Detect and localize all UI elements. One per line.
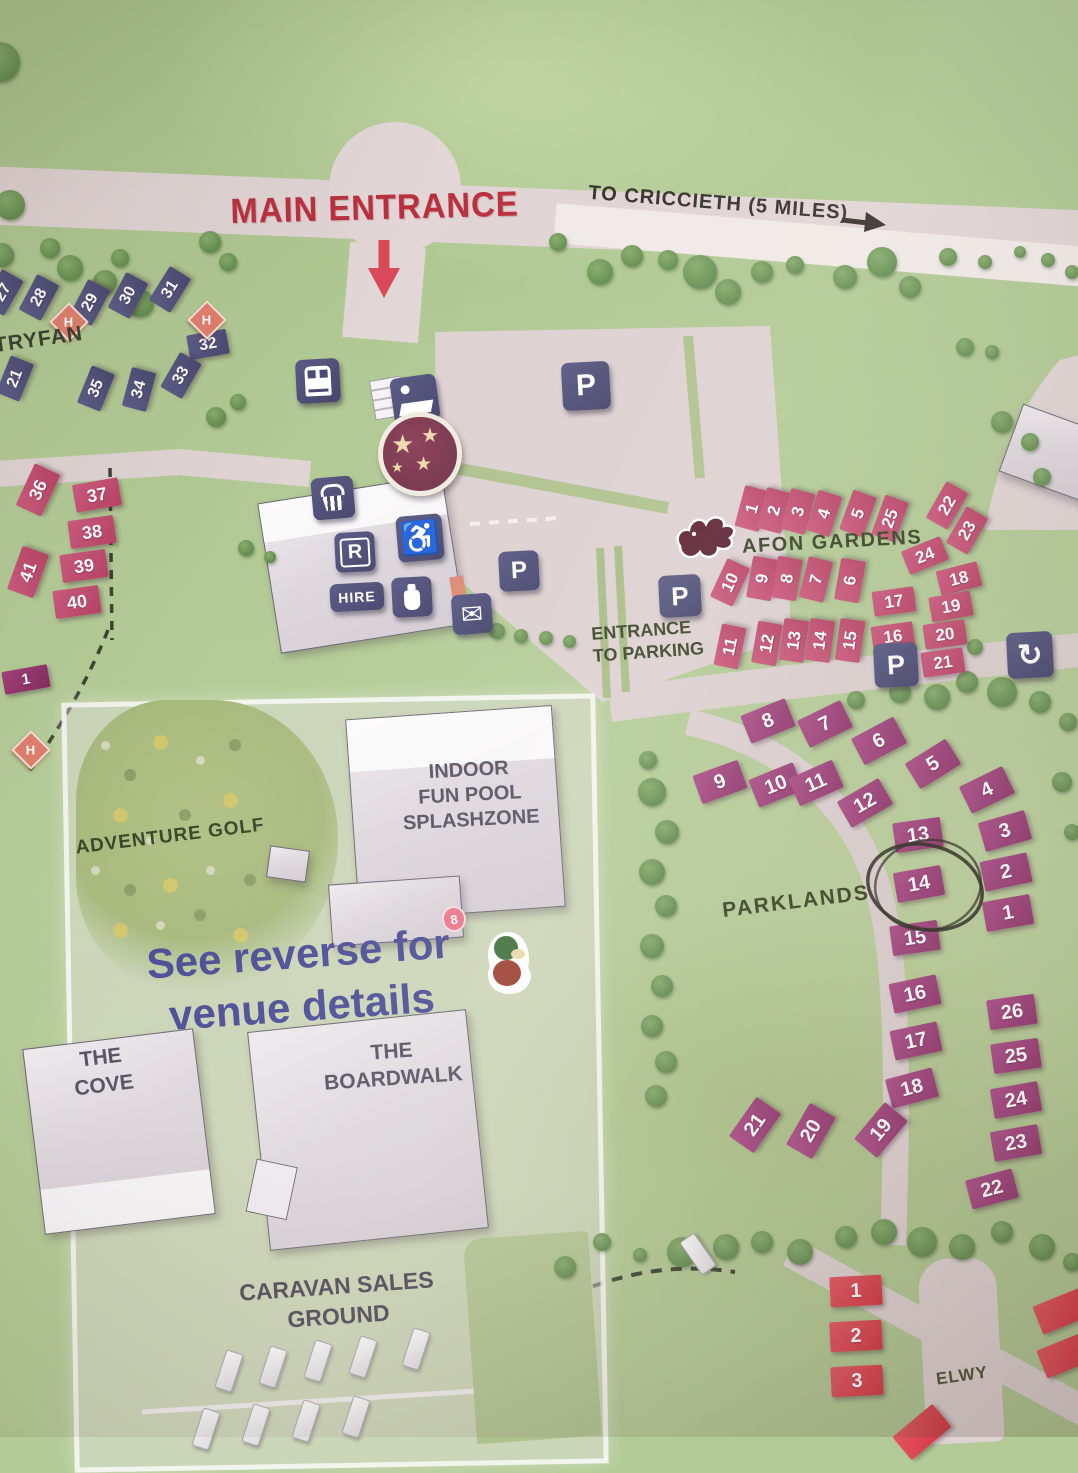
golf-hole-marker — [101, 741, 110, 750]
entertainment-stars-icon: ★ ★ ★ ★ — [378, 412, 462, 496]
tree — [514, 629, 528, 643]
tree — [563, 635, 576, 648]
star-icon: ★ — [415, 453, 432, 476]
tree — [593, 1233, 611, 1251]
tree — [835, 1226, 857, 1248]
tree — [1014, 246, 1026, 258]
golf-hole-marker — [229, 739, 241, 751]
tree — [640, 934, 664, 958]
golf-hole-marker — [91, 866, 100, 875]
criccieth-arrow-icon — [840, 208, 888, 236]
tree — [238, 540, 254, 556]
golf-hole-marker — [153, 735, 168, 750]
tree — [539, 631, 553, 645]
tree — [230, 394, 246, 410]
tree — [639, 751, 657, 769]
golf-hole-marker — [179, 809, 191, 821]
entrance-to-parking-label: ENTRANCE TO PARKING — [591, 616, 705, 667]
tree — [111, 249, 129, 267]
main-entrance-label: MAIN ENTRANCE — [230, 184, 519, 232]
golf-hole-marker — [194, 909, 206, 921]
tree — [1065, 265, 1078, 279]
parking-sign: P — [498, 550, 540, 592]
tree — [683, 255, 717, 289]
golf-hole-marker — [244, 874, 256, 886]
tree — [847, 691, 865, 709]
tree — [833, 265, 857, 289]
post-box-icon: ✉ — [451, 593, 494, 636]
tree — [1063, 1253, 1078, 1271]
tree — [987, 677, 1017, 707]
tree — [867, 247, 897, 277]
tree — [641, 1015, 663, 1037]
tree — [206, 407, 226, 427]
tree — [713, 1234, 739, 1260]
tree — [655, 895, 677, 917]
tree — [651, 975, 673, 997]
tree — [1052, 772, 1072, 792]
tree — [751, 1231, 773, 1253]
golf-hole-marker — [124, 769, 136, 781]
tree — [1021, 433, 1039, 451]
tree — [939, 248, 957, 266]
tree — [956, 671, 978, 693]
tree — [991, 411, 1013, 433]
tree — [1033, 468, 1051, 486]
tree — [587, 259, 613, 285]
tree — [715, 279, 741, 305]
reception-sign: R — [334, 531, 376, 573]
tree — [40, 238, 60, 258]
plot-elwy-1: 1 — [829, 1275, 882, 1308]
park-map: ★ ★ ★ ★ R HIRE ♿ ✉ ↻ 8 — [0, 0, 1078, 1437]
tree — [1064, 824, 1078, 840]
golf-hole-marker — [163, 878, 178, 893]
tree — [655, 1051, 677, 1073]
plot-afon-gardens-17: 17 — [871, 586, 916, 617]
hire-sign-label: HIRE — [338, 588, 376, 606]
tree — [57, 255, 83, 281]
golf-hole-marker — [124, 884, 136, 896]
tree — [1029, 691, 1051, 713]
parking-sign: P — [561, 361, 611, 411]
bus-stop-icon — [295, 358, 341, 404]
tree — [638, 778, 666, 806]
tree — [871, 1219, 897, 1245]
tree — [199, 231, 221, 253]
plot-afon-gardens-21: 21 — [920, 647, 965, 678]
cove-label: THE COVE — [52, 1038, 153, 1106]
golf-hut — [266, 845, 310, 882]
golf-hole-marker — [206, 866, 215, 875]
tree — [949, 1234, 975, 1260]
plot-afon-gardens-20: 20 — [922, 619, 967, 650]
tree — [658, 250, 678, 270]
tree — [751, 261, 773, 283]
tree — [899, 276, 921, 298]
plot-elwy-3: 3 — [830, 1365, 883, 1398]
duck-mascot-icon — [480, 928, 536, 998]
golf-hole-marker — [113, 923, 128, 938]
welsh-dragon-icon — [672, 512, 742, 568]
tree — [967, 639, 983, 655]
tree — [219, 253, 237, 271]
tree — [787, 1239, 813, 1265]
tree — [978, 255, 992, 269]
star-icon: ★ — [421, 423, 439, 448]
tree — [1041, 253, 1055, 267]
star-icon: ★ — [391, 459, 404, 476]
turning-circle-icon: ↻ — [1006, 631, 1054, 679]
tree — [991, 1221, 1013, 1243]
tree — [1029, 1234, 1055, 1260]
tree — [907, 1227, 937, 1257]
plot-elwy-2: 2 — [829, 1320, 882, 1353]
tree — [621, 245, 643, 267]
parking-sign: P — [873, 642, 919, 688]
tree — [924, 684, 950, 710]
pool-label: INDOOR FUN POOL SPLASHZONE — [383, 754, 557, 838]
tree — [786, 256, 804, 274]
shop-basket-icon — [310, 475, 356, 521]
tree — [549, 233, 567, 251]
tree — [956, 338, 974, 356]
golf-hole-marker — [113, 808, 128, 823]
star-icon: ★ — [391, 429, 414, 460]
tree — [655, 820, 679, 844]
tree — [639, 859, 665, 885]
pen-circle-annotation — [855, 830, 1000, 945]
tree — [633, 1248, 647, 1262]
tree — [985, 345, 999, 359]
golf-hole-marker — [156, 921, 165, 930]
tree — [554, 1256, 576, 1278]
golf-hole-marker — [196, 756, 205, 765]
golf-hole-marker — [223, 793, 238, 808]
tree — [645, 1085, 667, 1107]
tree — [264, 551, 276, 563]
tree — [1059, 713, 1077, 731]
grass-patch — [463, 1231, 602, 1444]
milk-bottle-icon — [391, 576, 433, 618]
accessibility-icon: ♿ — [395, 513, 445, 563]
reception-sign-letter: R — [339, 537, 371, 568]
main-entrance-arrow-icon — [358, 238, 410, 302]
parking-sign: P — [658, 574, 702, 618]
hire-sign: HIRE — [329, 582, 384, 613]
